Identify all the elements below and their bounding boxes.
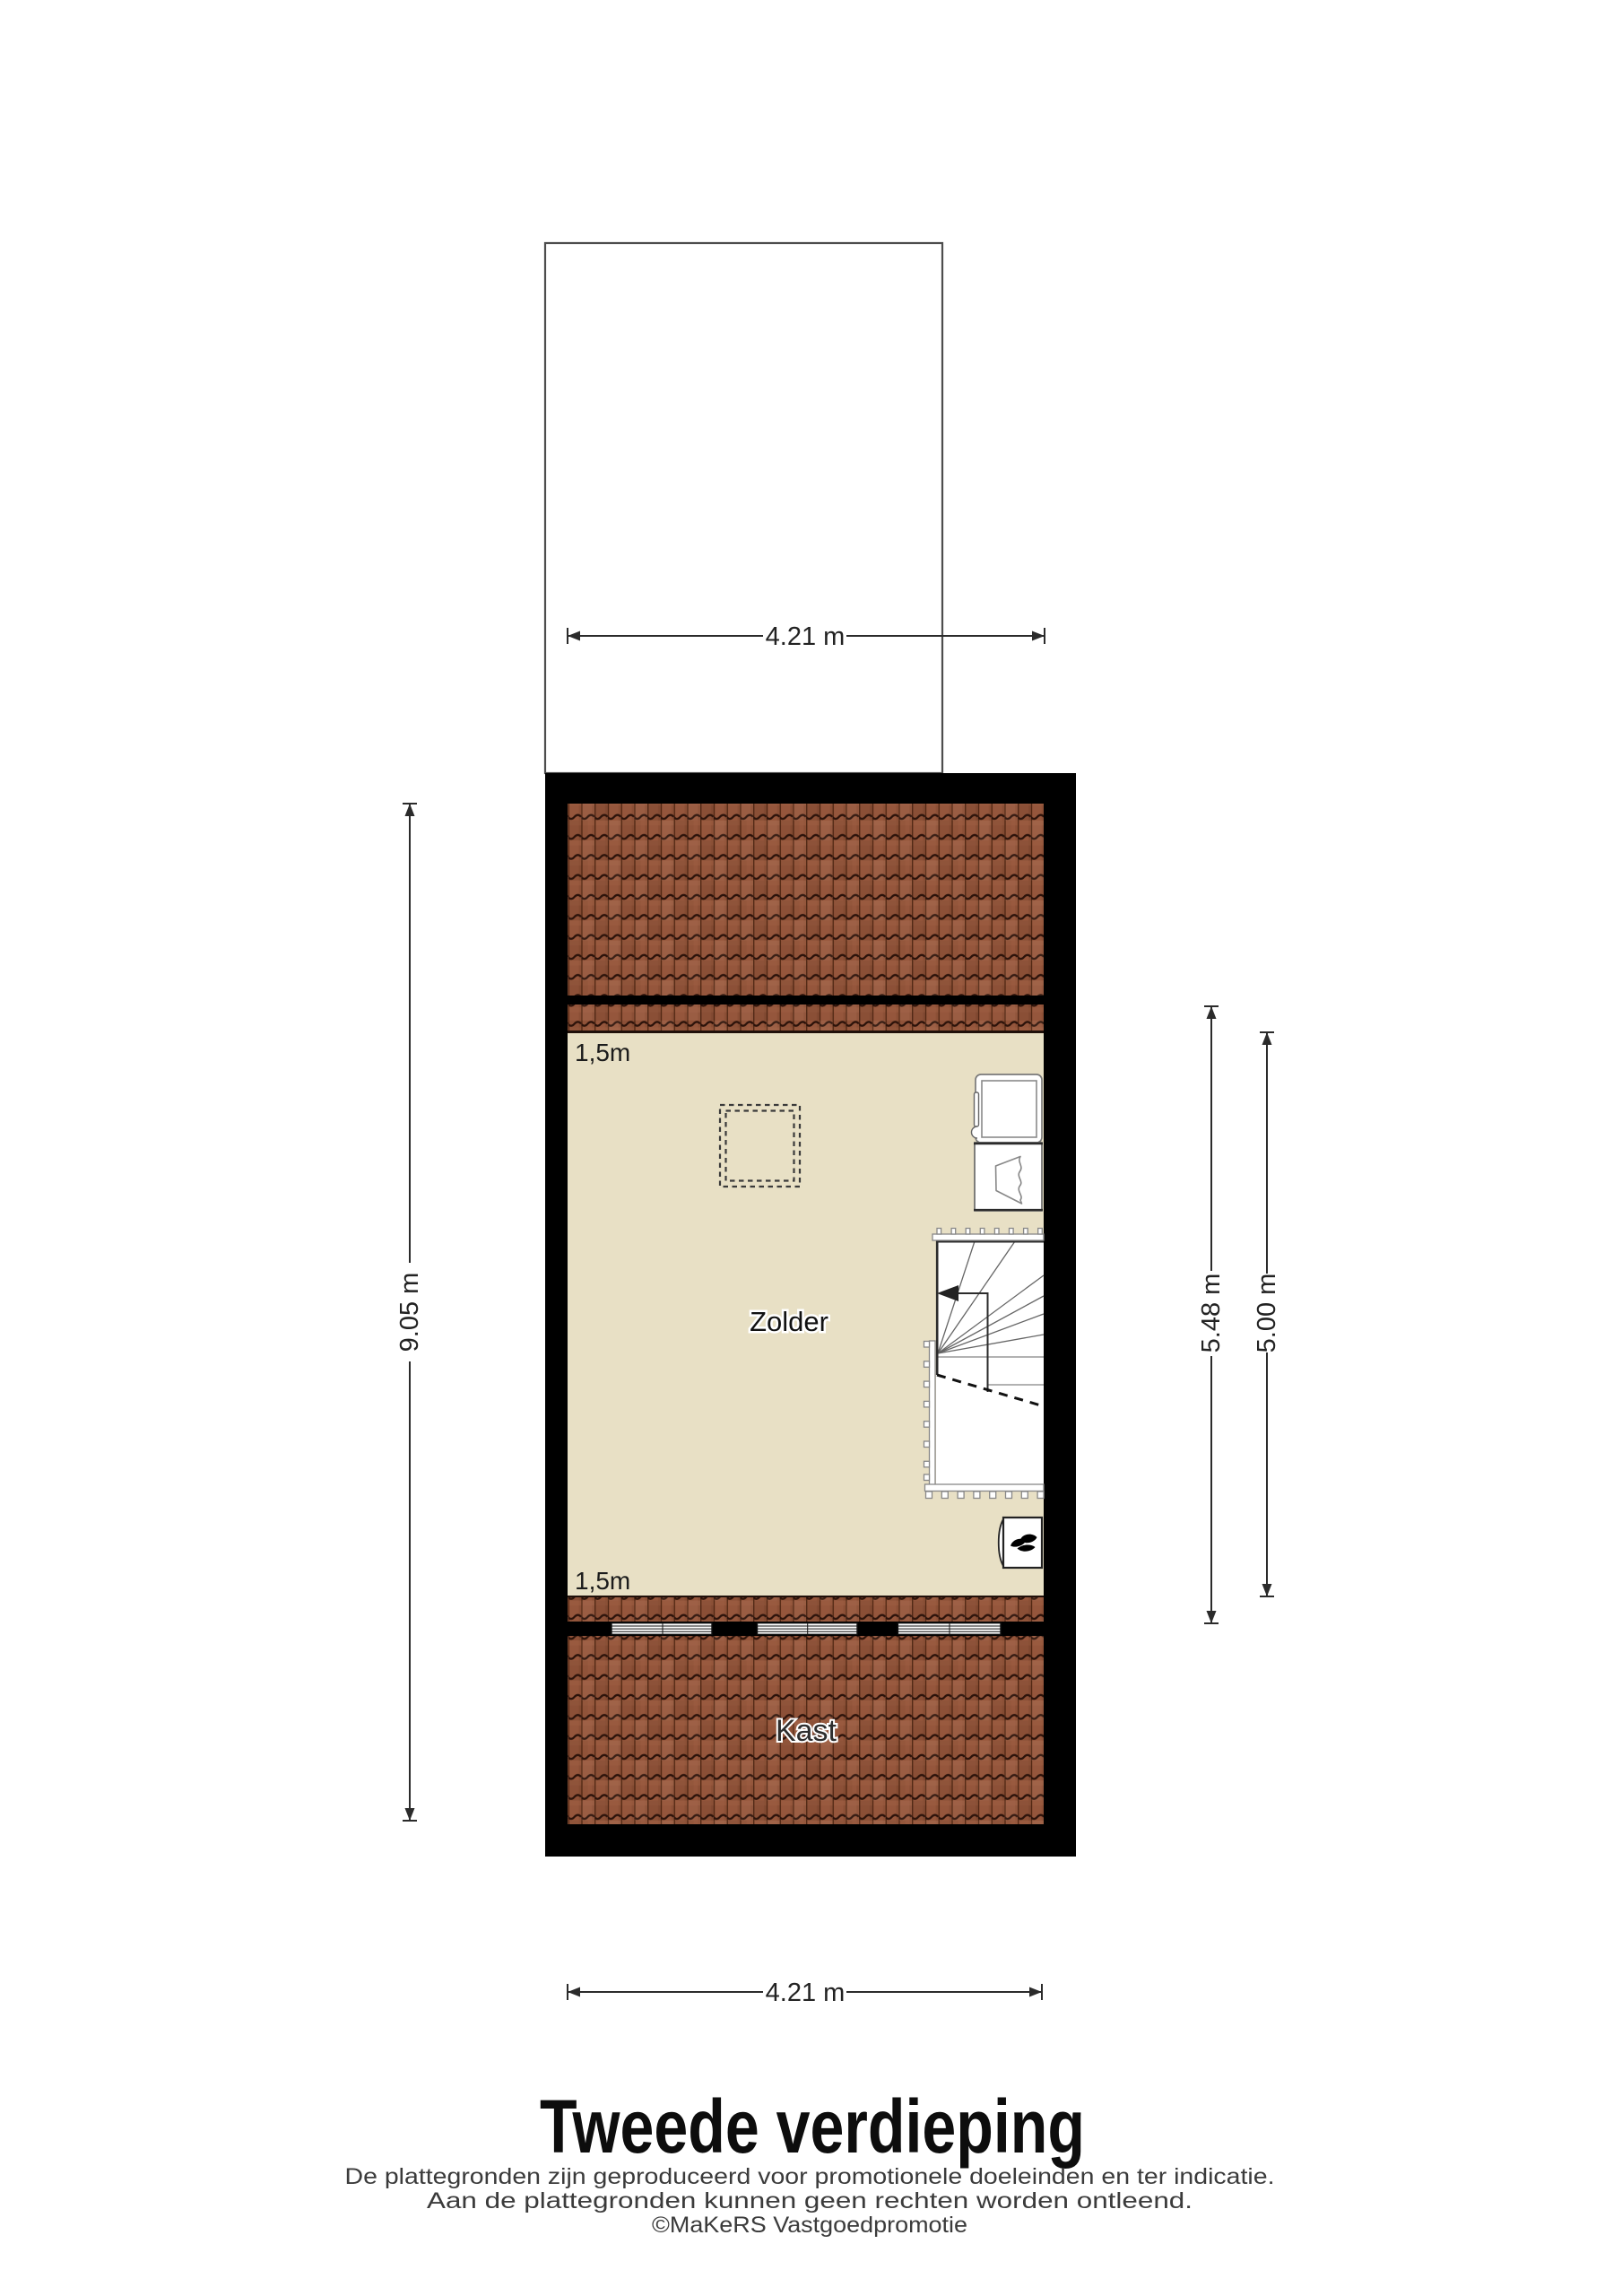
svg-text:5.48 m: 5.48 m xyxy=(1197,1274,1226,1353)
svg-text:©MaKeRS Vastgoedpromotie: ©MaKeRS Vastgoedpromotie xyxy=(652,2213,967,2238)
svg-text:De plattegronden zijn geproduc: De plattegronden zijn geproduceerd voor … xyxy=(345,2164,1275,2189)
svg-text:Kast: Kast xyxy=(776,1714,837,1748)
svg-text:9.05 m: 9.05 m xyxy=(395,1273,424,1352)
svg-text:1,5m: 1,5m xyxy=(575,1039,630,1066)
svg-text:1,5m: 1,5m xyxy=(575,1567,630,1595)
svg-text:Tweede verdieping: Tweede verdieping xyxy=(540,2084,1085,2169)
svg-text:Aan de plattegronden kunnen ge: Aan de plattegronden kunnen geen rechten… xyxy=(427,2188,1193,2213)
svg-text:Zolder: Zolder xyxy=(750,1306,828,1337)
svg-text:5.00 m: 5.00 m xyxy=(1253,1274,1281,1353)
svg-text:4.21 m: 4.21 m xyxy=(766,622,846,651)
svg-text:4.21 m: 4.21 m xyxy=(766,1979,846,2007)
